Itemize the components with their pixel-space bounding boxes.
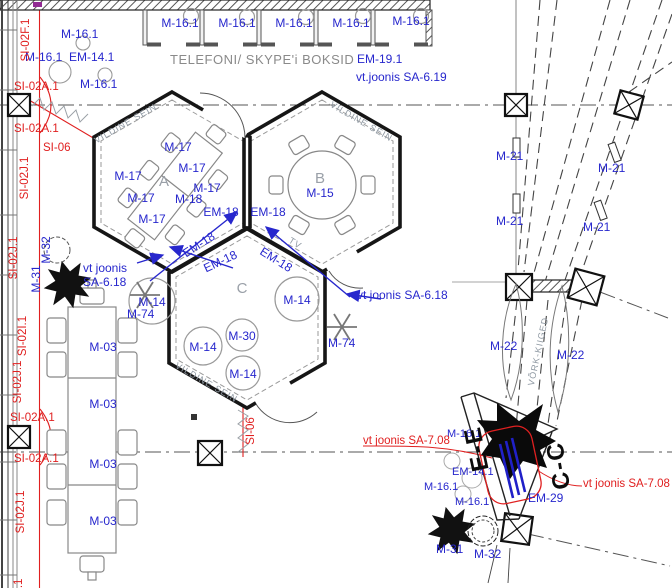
purple-marker	[33, 2, 42, 7]
label-m74-l: M-74	[127, 307, 155, 321]
label-m18: M-18	[175, 192, 203, 206]
label-m14-4: M-14	[229, 367, 257, 381]
label-si02i-v: SI-02I.1	[17, 316, 29, 356]
label-m30: M-30	[228, 329, 256, 343]
label-m21-1: M-21	[496, 149, 524, 163]
label-m14-2: M-14	[283, 293, 311, 307]
label-tv: TV	[287, 235, 304, 251]
label-m22-2: M-22	[557, 348, 585, 362]
label-m16-booth5: M-16.1	[392, 14, 430, 28]
label-room-a: A	[159, 173, 169, 190]
label-m17-2: M-17	[178, 161, 206, 175]
label-m22-1: M-22	[490, 339, 518, 353]
label-si02j-v4: SI-02J.1	[15, 491, 27, 534]
label-m16-tl3: M-16.1	[80, 77, 118, 91]
label-em18-1: EM-18	[203, 205, 239, 219]
label-em14-tl: EM-14.1	[69, 50, 115, 64]
label-m17-6: M-17	[138, 212, 166, 226]
label-vt-sa708-l: vt joonis SA-7.08	[363, 435, 450, 447]
label-m16-tl1: M-16.1	[61, 27, 99, 41]
plan-svg: TELEFONI/ SKYPE'i BOKSID EM-19.1 vt.joon…	[0, 0, 672, 588]
label-m16-booth3: M-16.1	[275, 16, 313, 30]
label-em18-5: EM-18	[257, 244, 295, 275]
label-m17-5: M-17	[127, 191, 155, 205]
label-section-cc: C-C	[541, 439, 576, 492]
label-em29: EM-29	[528, 491, 564, 505]
label-m16-booth2: M-16.1	[218, 16, 256, 30]
label-m03-3: M-03	[89, 457, 117, 471]
label-m31-v: M-31	[29, 265, 43, 293]
label-m21-3: M-21	[496, 214, 524, 228]
label-m32-v: M-32	[39, 236, 53, 264]
label-telefoni: TELEFONI/ SKYPE'i BOKSID	[170, 52, 354, 67]
label-m16-booth1: M-16.1	[161, 16, 199, 30]
label-vt-sa619: vt.joonis SA-6.19	[356, 70, 447, 84]
beam	[530, 280, 573, 292]
label-m03-2: M-03	[89, 397, 117, 411]
label-m03-4: M-03	[89, 514, 117, 528]
label-em19-1: EM-19.1	[357, 52, 403, 66]
label-vildine-a: VILDINE SEIN	[92, 101, 158, 145]
label-room-c: C	[237, 280, 248, 297]
label-m21-4: M-21	[583, 220, 611, 234]
label-vt-sa618-l1: vt joonis	[83, 261, 127, 275]
label-si02j-v5: SI-02J.1	[13, 579, 25, 588]
label-m31-br: M-31	[436, 542, 464, 556]
label-vork-kiiged: VÕRK-KIIGED	[526, 316, 550, 387]
label-vt-sa618-r: vt joonis SA-6.18	[357, 288, 448, 302]
label-si02j-v2: SI-02J.1	[8, 237, 20, 280]
label-si02j-v3: SI-02J.1	[12, 361, 24, 404]
label-si02a-1: SI-02A.1	[14, 81, 59, 93]
floor-plan-drawing: TELEFONI/ SKYPE'i BOKSID EM-19.1 vt.joon…	[0, 0, 672, 588]
label-si02f-v: SI-02F.1	[20, 19, 32, 62]
long-table	[47, 280, 137, 580]
label-m03-1: M-03	[89, 340, 117, 354]
label-m16-br3: M-16.1	[455, 496, 489, 508]
label-em18-2: EM-18	[250, 205, 286, 219]
label-m21-2: M-21	[598, 161, 626, 175]
label-m16-br2: M-16.1	[424, 481, 458, 493]
label-si02j-v1: SI-02J.1	[19, 157, 31, 200]
label-vildine-b: VILDINE SEIN	[328, 99, 394, 143]
label-m15: M-15	[306, 186, 334, 200]
label-vt-sa708-r: vt joonis SA-7.08	[583, 478, 670, 490]
label-m17-1: M-17	[164, 140, 192, 154]
label-m14-3: M-14	[189, 340, 217, 354]
label-si06-h: SI-06	[43, 142, 71, 154]
label-room-b: B	[315, 170, 325, 187]
label-si02a-2: SI-02A.1	[14, 123, 59, 135]
label-si02a-4: SI-02A.1	[14, 453, 59, 465]
small-marker	[191, 414, 197, 420]
label-m17-3: M-17	[114, 169, 142, 183]
label-m16-booth4: M-16.1	[332, 16, 370, 30]
label-si02a-3: SI-02A.1	[10, 412, 55, 424]
label-m74-r: M-74	[328, 336, 356, 350]
label-m32-br: M-32	[474, 547, 502, 561]
label-si06-v: SI-06	[245, 417, 257, 445]
label-vt-sa618-l2: SA-6.18	[83, 275, 127, 289]
